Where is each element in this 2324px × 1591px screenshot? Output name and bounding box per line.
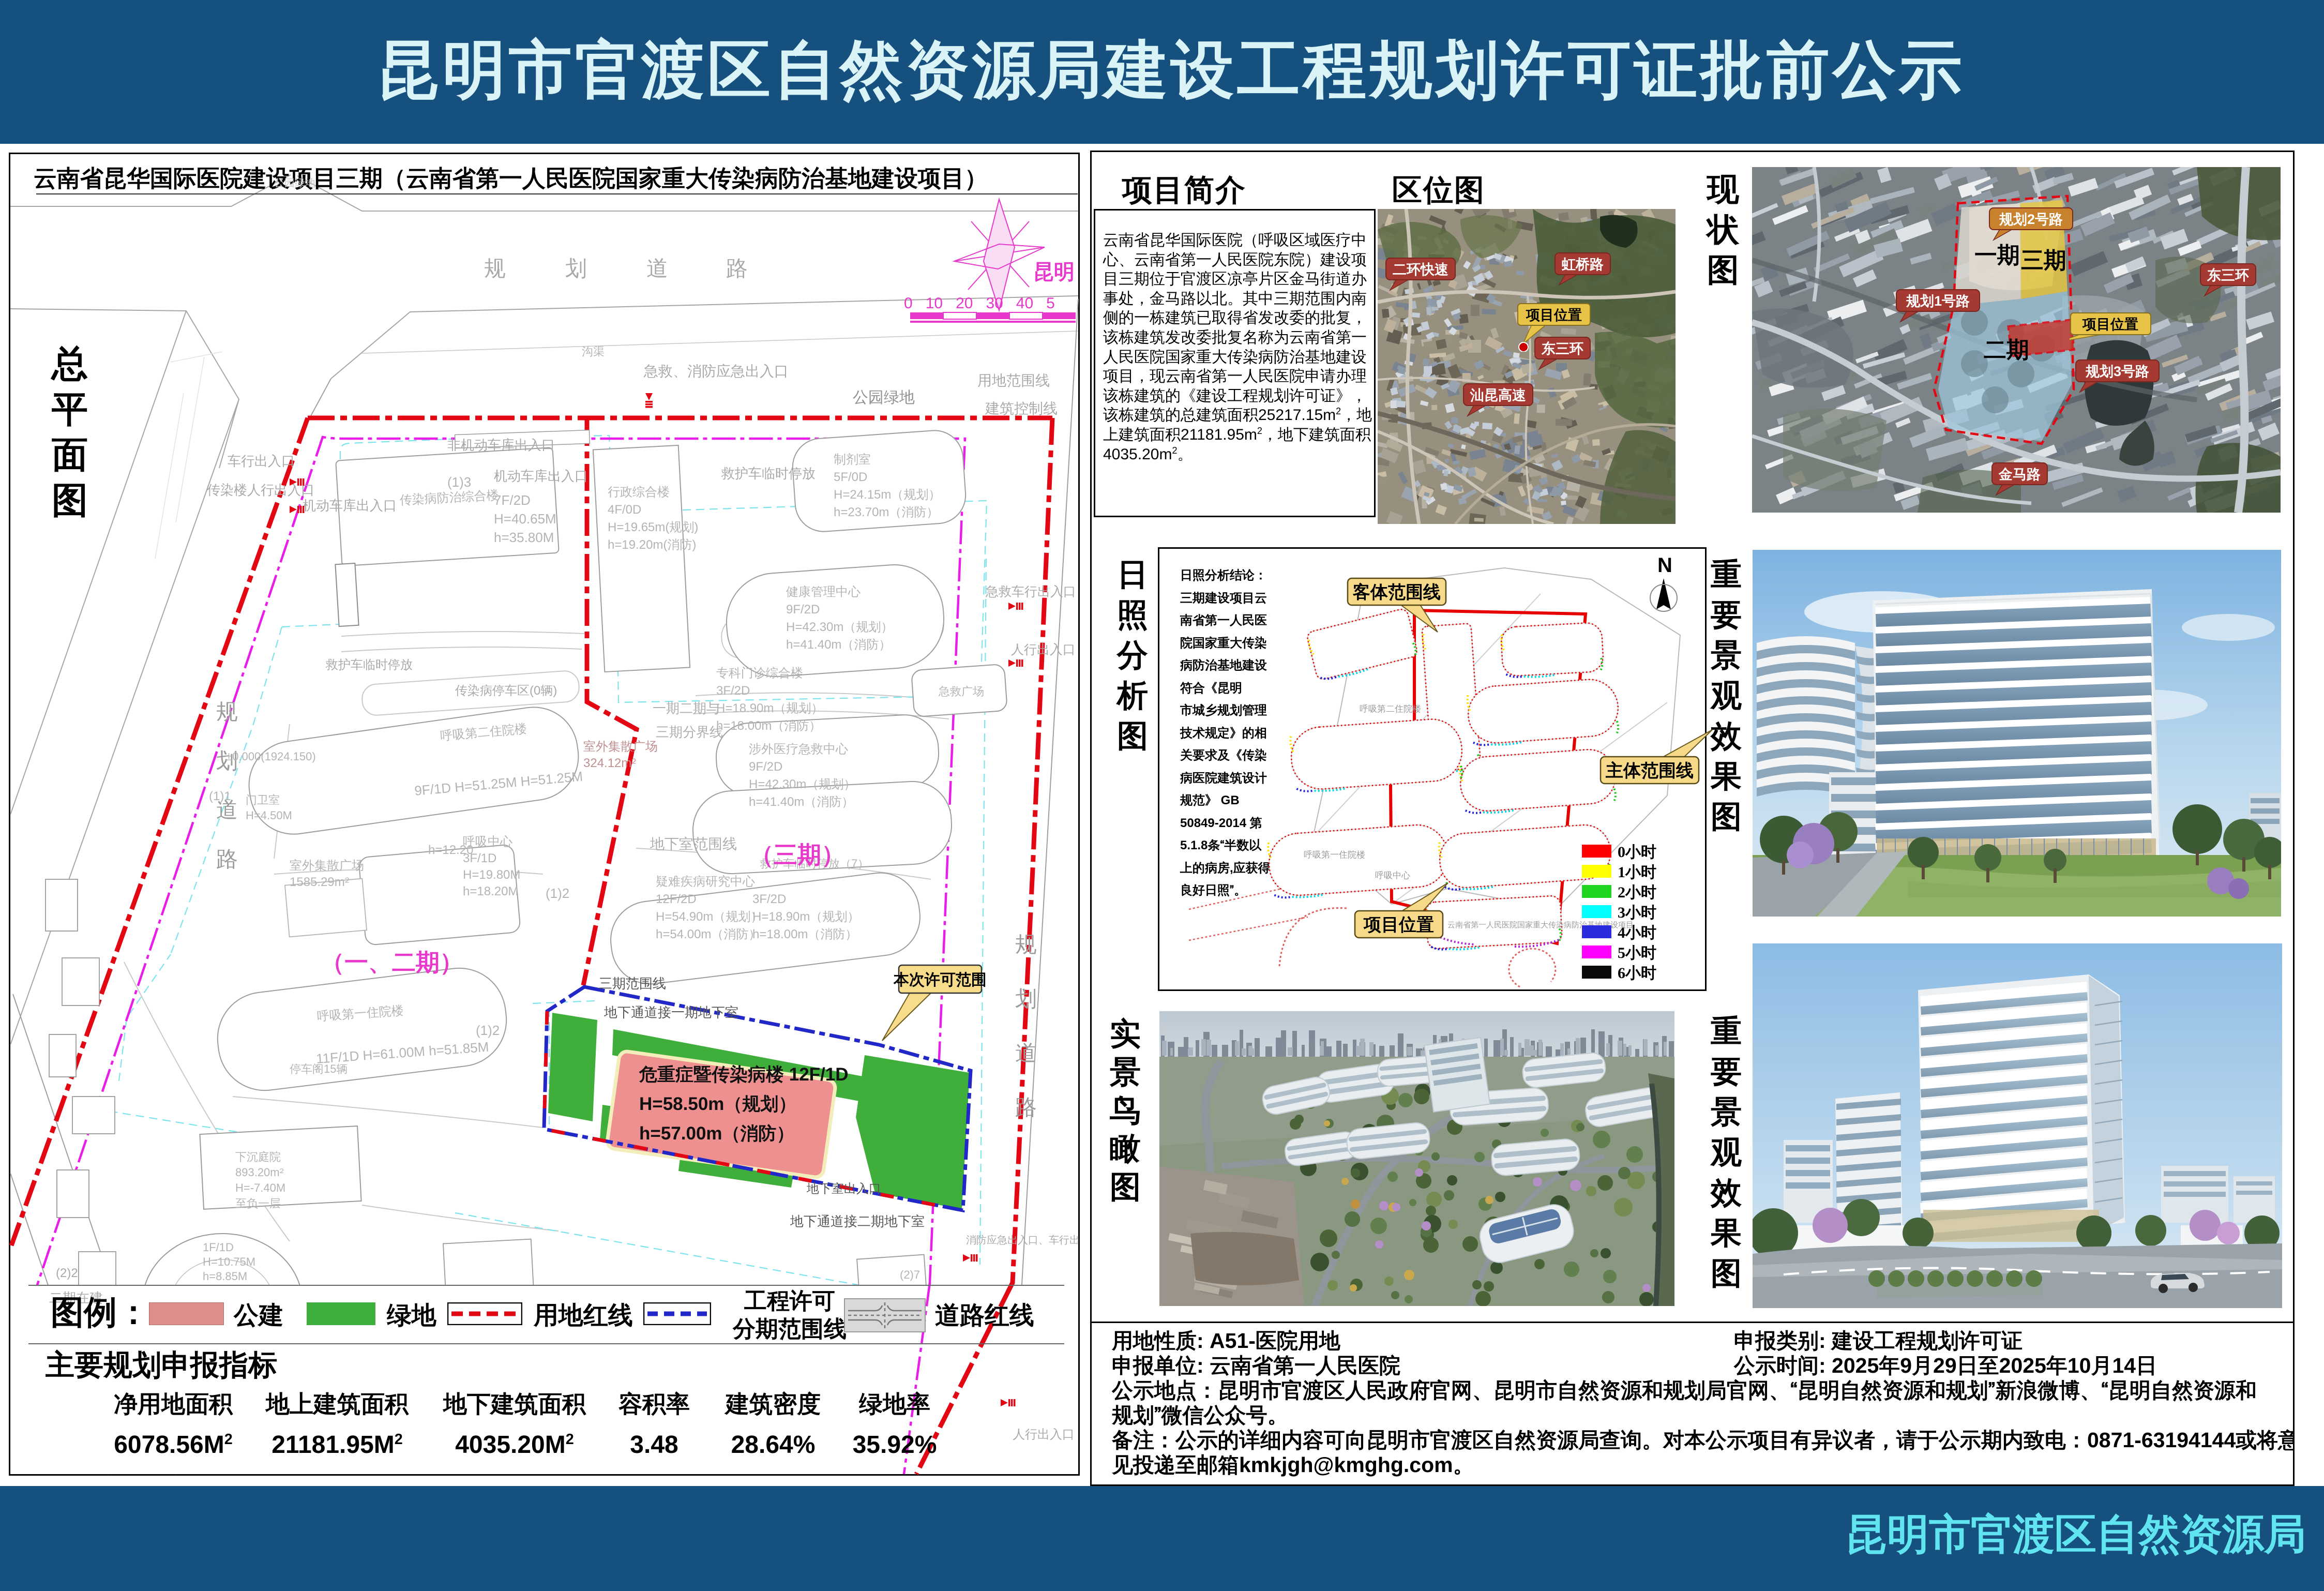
svg-text:呼吸第二住院楼: 呼吸第二住院楼 bbox=[1360, 704, 1421, 715]
svg-text:1小时: 1小时 bbox=[1618, 862, 1656, 882]
svg-text:3小时: 3小时 bbox=[1618, 903, 1656, 922]
svg-text:6小时: 6小时 bbox=[1618, 963, 1656, 983]
svg-text:规划1号路: 规划1号路 bbox=[1905, 293, 1970, 310]
svg-text:主体范围线: 主体范围线 bbox=[1605, 760, 1694, 782]
svg-text:三期: 三期 bbox=[2021, 247, 2066, 275]
svg-text:客体范围线: 客体范围线 bbox=[1352, 581, 1441, 604]
svg-text:4小时: 4小时 bbox=[1618, 923, 1656, 942]
svg-text:项目位置: 项目位置 bbox=[1363, 914, 1434, 936]
svg-text:规划2号路: 规划2号路 bbox=[1998, 211, 2063, 229]
svg-text:二环快速: 二环快速 bbox=[1393, 261, 1448, 279]
svg-text:呼吸中心: 呼吸中心 bbox=[1375, 870, 1410, 881]
svg-text:东三环: 东三环 bbox=[2207, 267, 2250, 284]
svg-text:汕昆高速: 汕昆高速 bbox=[1470, 387, 1526, 404]
svg-text:虹桥路: 虹桥路 bbox=[1561, 256, 1604, 274]
svg-text:呼吸第一住院楼: 呼吸第一住院楼 bbox=[1304, 850, 1365, 861]
svg-text:二期: 二期 bbox=[1984, 336, 2029, 365]
svg-text:东三环: 东三环 bbox=[1541, 340, 1584, 358]
svg-text:规划3号路: 规划3号路 bbox=[2085, 363, 2150, 381]
svg-text:项目位置: 项目位置 bbox=[2082, 316, 2138, 334]
svg-text:N: N bbox=[1657, 554, 1672, 577]
svg-text:项目位置: 项目位置 bbox=[1526, 307, 1582, 324]
svg-text:0小时: 0小时 bbox=[1618, 842, 1656, 862]
svg-text:一期: 一期 bbox=[1974, 242, 2020, 270]
svg-text:2小时: 2小时 bbox=[1618, 882, 1656, 902]
svg-text:金马路: 金马路 bbox=[1998, 466, 2041, 484]
svg-text:5小时: 5小时 bbox=[1618, 943, 1656, 963]
